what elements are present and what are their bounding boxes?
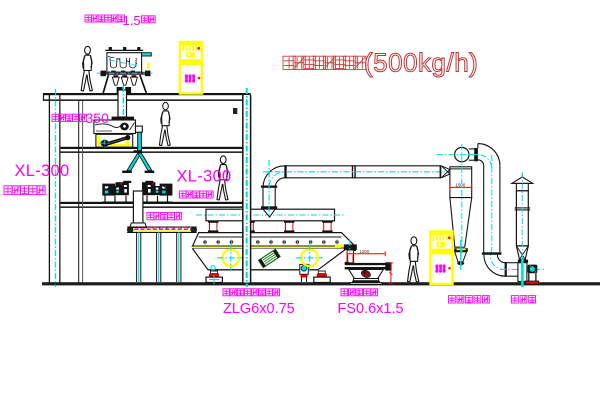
- svg-text:1.5: 1.5: [123, 13, 141, 28]
- svg-text:(500kg/h): (500kg/h): [364, 48, 478, 78]
- svg-text:1500: 1500: [456, 182, 466, 187]
- svg-text:FS0.6x1.5: FS0.6x1.5: [338, 301, 404, 317]
- svg-text:XL-300: XL-300: [15, 162, 70, 180]
- svg-text:ZLG6x0.75: ZLG6x0.75: [223, 301, 295, 317]
- svg-text:350: 350: [86, 110, 110, 126]
- svg-text:1500: 1500: [360, 249, 370, 254]
- svg-text:XL-300: XL-300: [177, 168, 232, 186]
